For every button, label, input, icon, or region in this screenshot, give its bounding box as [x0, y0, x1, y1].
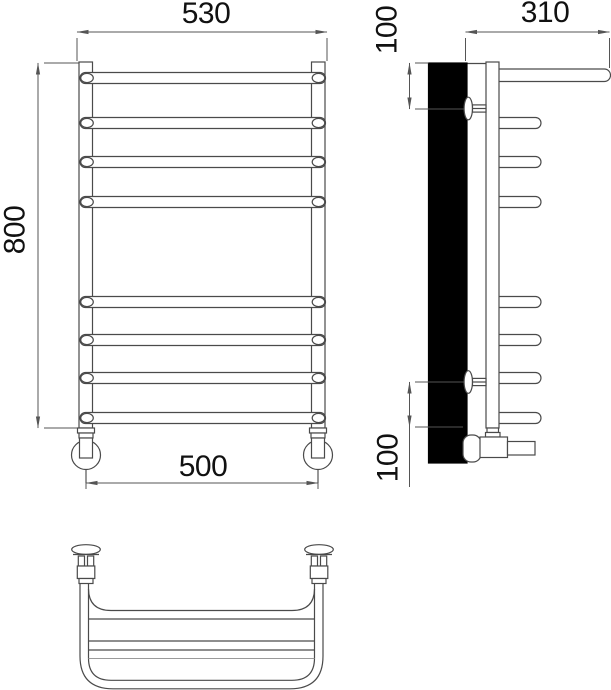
- dim-side-depth-label: 310: [521, 0, 570, 29]
- dim-side-top-offset-label: 100: [371, 6, 404, 55]
- lower-wall-bracket: [464, 371, 486, 394]
- wall-section: [429, 63, 468, 463]
- front-view: 530 800 500: [0, 0, 333, 489]
- top-left-bend: [89, 589, 112, 611]
- dim-front-bottom-width: 500: [86, 450, 318, 489]
- dim-side-depth: 310: [466, 0, 610, 68]
- front-rung: [80, 118, 326, 129]
- side-view: 310 100 100: [371, 0, 611, 487]
- front-rung: [80, 157, 326, 168]
- side-rung-stubs: [490, 69, 611, 424]
- side-valve-fitting: [463, 428, 535, 462]
- side-rail: [486, 62, 499, 428]
- front-rung: [80, 373, 326, 384]
- dim-front-top-width: 530: [77, 0, 327, 61]
- side-shelf-rung: [490, 69, 611, 82]
- dim-front-height: 800: [0, 63, 79, 428]
- towel-rail-drawing: 530 800 500: [0, 0, 611, 690]
- left-wall-mount: [72, 545, 101, 584]
- top-right-bend: [292, 589, 315, 611]
- top-rung-lines: [89, 611, 315, 659]
- right-wall-mount: [305, 545, 334, 584]
- dim-side-bottom-offset-label: 100: [372, 434, 405, 483]
- front-rung: [80, 197, 326, 208]
- wall-mount-flange: [305, 545, 334, 555]
- dim-front-top-width-label: 530: [182, 0, 231, 30]
- front-rung: [80, 297, 326, 308]
- technical-drawing-canvas: 530 800 500: [0, 0, 611, 690]
- dim-front-bottom-width-label: 500: [179, 450, 228, 483]
- dim-front-height-label: 800: [0, 206, 32, 255]
- front-rung: [80, 413, 326, 424]
- top-shelf-tube-outer: [80, 584, 323, 689]
- upper-wall-bracket: [464, 97, 486, 120]
- top-shelf-tube-inner: [89, 584, 315, 680]
- wall-mount-flange: [72, 545, 101, 555]
- top-view: [72, 545, 334, 689]
- front-rung: [80, 335, 326, 346]
- front-rungs: [80, 73, 326, 424]
- front-rung: [80, 73, 326, 84]
